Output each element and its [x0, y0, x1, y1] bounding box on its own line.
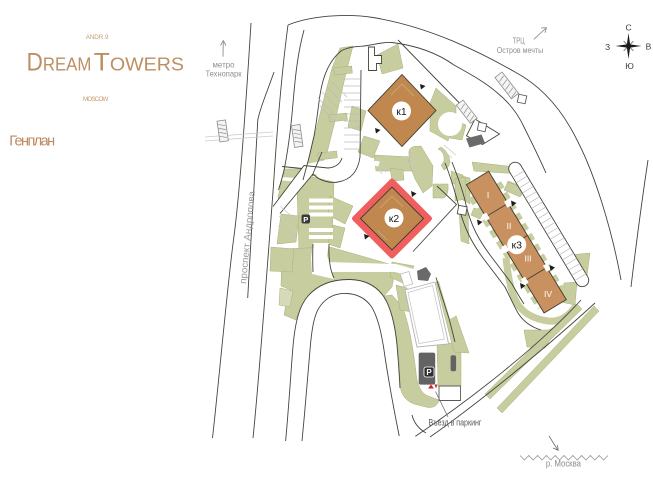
svg-text:ANDR.9: ANDR.9	[86, 34, 109, 41]
svg-text:DREAM: DREAM	[27, 48, 92, 76]
svg-text:MOSCOW: MOSCOW	[83, 96, 109, 103]
svg-text:З: З	[605, 42, 610, 52]
svg-text:P: P	[426, 368, 432, 377]
svg-text:Остров мечты: Остров мечты	[497, 45, 544, 55]
svg-text:Технопарк: Технопарк	[206, 68, 242, 78]
svg-text:I: I	[487, 190, 489, 200]
svg-text:P: P	[303, 215, 308, 224]
svg-text:В: В	[646, 41, 652, 51]
svg-text:р. Москва: р. Москва	[546, 459, 581, 469]
svg-text:III: III	[524, 254, 531, 264]
svg-text:TOWERS: TOWERS	[94, 48, 184, 76]
svg-text:Въезд в паркинг: Въезд в паркинг	[429, 418, 482, 429]
svg-text:С: С	[625, 23, 631, 33]
svg-text:Ю: Ю	[625, 61, 634, 71]
svg-text:к2: к2	[389, 213, 400, 225]
svg-text:IV: IV	[544, 289, 552, 299]
svg-text:Генплан: Генплан	[9, 134, 55, 150]
svg-text:к1: к1	[396, 106, 407, 118]
svg-text:II: II	[507, 221, 512, 231]
svg-text:к3: к3	[511, 240, 522, 252]
